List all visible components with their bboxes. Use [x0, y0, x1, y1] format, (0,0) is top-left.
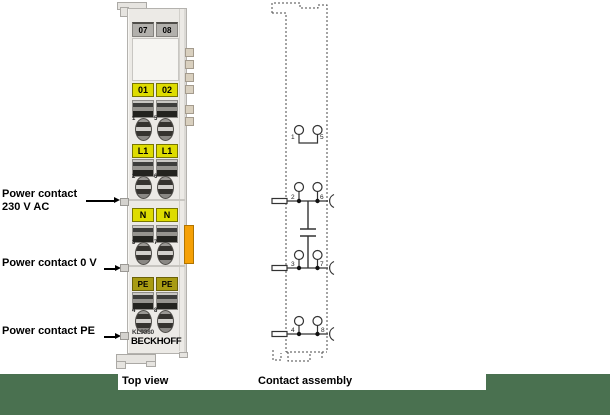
power-blade-pe: [272, 332, 287, 337]
terminal-label: PE: [132, 277, 154, 291]
arrow-power-pe: [104, 336, 115, 338]
model-number: KL9380: [132, 329, 154, 336]
contact-number: 7: [154, 240, 157, 246]
release-latch: [184, 225, 194, 264]
terminal-label-text: PE: [162, 280, 173, 289]
brand-logo: BECKHOFF: [131, 336, 181, 347]
contact-number: 2: [291, 194, 295, 201]
contact-number: 4: [291, 327, 295, 334]
power-contact-blade-pe: [120, 332, 129, 340]
contact-circle-7: [313, 251, 322, 260]
annotation-line: Power contact PE: [2, 325, 95, 337]
address-label: 08: [156, 22, 178, 37]
screw-contact: [157, 310, 174, 333]
arrow-power-230: [86, 200, 114, 202]
screw-contact: [157, 242, 174, 265]
annotation-power-0v: Power contact 0 V: [2, 257, 97, 270]
screw-contact: [135, 176, 152, 199]
module-seam: [128, 265, 185, 267]
wire-slot: [156, 100, 178, 118]
wire-slot: [156, 292, 178, 310]
wire-slot: [156, 159, 178, 177]
power-contact-blade-230v: [120, 198, 129, 206]
annotation-line: 230 V AC: [2, 201, 77, 214]
contact-number: 2: [132, 174, 135, 180]
spring-contact-0v: [330, 262, 334, 275]
terminal-label-text: 01: [138, 85, 148, 95]
annotation-line: Power contact: [2, 188, 77, 201]
contact-number: 4: [132, 308, 135, 314]
contact-circle-8: [313, 317, 322, 326]
terminal-label-text: 02: [162, 85, 172, 95]
address-label-text: 07: [139, 26, 148, 35]
annotation-line: Power contact 0 V: [2, 257, 97, 269]
caption-top-view: Top view: [122, 375, 168, 387]
address-label: 07: [132, 22, 154, 37]
module-bottom-step: [179, 352, 188, 358]
contact-number: 1: [291, 134, 295, 141]
terminal-label-text: L1: [162, 146, 173, 156]
terminal-label-text: PE: [138, 280, 149, 289]
kbus-contact-tab: [185, 48, 194, 57]
power-blade-0v: [272, 266, 287, 271]
caption-contact-assembly: Contact assembly: [258, 375, 352, 387]
screw-contact: [135, 118, 152, 141]
module-seam: [128, 199, 185, 201]
bridge-link: [299, 135, 318, 144]
contact-circle-1: [295, 126, 304, 135]
contact-circle-6: [313, 183, 322, 192]
kbus-contact-tab: [185, 60, 194, 69]
contact-number: 6: [320, 194, 324, 201]
caption-bar: Top view Contact assembly: [118, 374, 486, 390]
contact-number: 5: [154, 116, 157, 122]
power-blade-230v: [272, 199, 287, 204]
terminal-label-text: L1: [138, 146, 149, 156]
terminal-label: 02: [156, 83, 178, 97]
power-contact-blade-0v: [120, 264, 129, 272]
contact-circle-4: [295, 317, 304, 326]
contact-number: 3: [132, 240, 135, 246]
din-rail-foot-hook: [116, 361, 126, 369]
kbus-contact-tab: [185, 85, 194, 94]
contact-number: 3: [291, 261, 295, 268]
terminal-label: N: [156, 208, 178, 222]
contact-number: 7: [320, 261, 324, 268]
diagram-canvas: Power contact 230 V AC Power contact 0 V…: [0, 0, 610, 415]
arrow-power-0v: [104, 268, 115, 270]
kbus-contact-tab: [185, 73, 194, 82]
spring-contact-230v: [330, 195, 334, 208]
terminal-label: L1: [132, 144, 154, 158]
kbus-contact-tab: [185, 105, 194, 114]
terminal-label-text: N: [164, 210, 171, 220]
address-label-text: 08: [163, 26, 172, 35]
terminal-label: PE: [156, 277, 178, 291]
annotation-power-pe: Power contact PE: [2, 325, 95, 338]
contact-circle-3: [295, 251, 304, 260]
contact-number: 8: [154, 308, 157, 314]
description-field: [132, 38, 179, 81]
terminal-label: N: [132, 208, 154, 222]
screw-contact: [135, 242, 152, 265]
schematic-contact-numbers: 1 5 2 6 3 7 4 8: [291, 134, 325, 334]
contact-assembly-schematic: 1 5 2 6 3 7 4 8: [260, 0, 350, 372]
kbus-contact-tab: [185, 117, 194, 126]
terminal-label: L1: [156, 144, 178, 158]
contact-circle-2: [295, 183, 304, 192]
wire-slot: [156, 225, 178, 243]
junction-dot: [297, 332, 301, 336]
contact-number: 8: [321, 327, 325, 334]
terminal-label: 01: [132, 83, 154, 97]
module-seam-vertical: [179, 9, 180, 351]
contact-number: 6: [154, 174, 157, 180]
contact-number: 5: [320, 134, 324, 141]
terminal-label-text: N: [140, 210, 147, 220]
screw-contact: [157, 176, 174, 199]
spring-contact-pe: [330, 328, 334, 341]
contact-number: 1: [132, 116, 135, 122]
junction-dot: [297, 266, 301, 270]
din-rail-foot-stub: [146, 361, 156, 367]
screw-contact: [157, 118, 174, 141]
annotation-power-230: Power contact 230 V AC: [2, 188, 77, 214]
junction-dot: [315, 332, 319, 336]
junction-dot: [297, 199, 301, 203]
